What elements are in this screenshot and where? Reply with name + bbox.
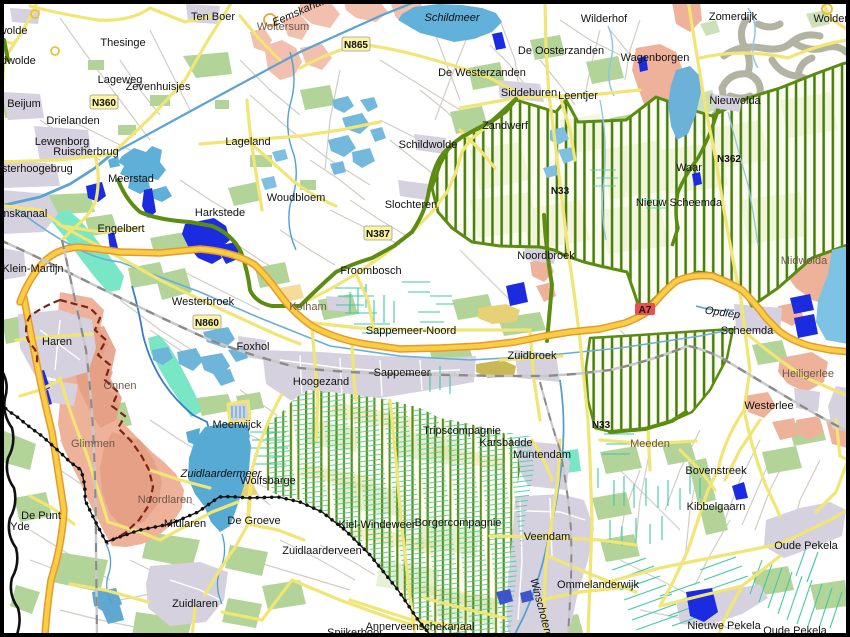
svg-text:Meeden: Meeden	[630, 438, 670, 450]
svg-text:Tripscompagnie: Tripscompagnie	[423, 425, 501, 437]
svg-text:Wolden: Wolden	[813, 13, 850, 25]
svg-text:Thesinge: Thesinge	[100, 37, 145, 49]
svg-text:Zomerdijk: Zomerdijk	[709, 11, 758, 23]
svg-text:Foxhol: Foxhol	[236, 341, 269, 353]
svg-text:Bovenstreek: Bovenstreek	[685, 465, 747, 477]
svg-text:N33: N33	[551, 186, 570, 197]
svg-text:Zuidlaarderveen: Zuidlaarderveen	[282, 545, 362, 557]
svg-text:N362: N362	[717, 154, 741, 165]
svg-text:Zuidbroek: Zuidbroek	[508, 350, 557, 362]
svg-text:Oude Pekela: Oude Pekela	[774, 540, 838, 552]
svg-text:De Oosterzanden: De Oosterzanden	[518, 45, 604, 57]
svg-text:N860: N860	[195, 318, 219, 329]
svg-text:Harkstede: Harkstede	[195, 207, 245, 219]
svg-text:Zuidlaardermeer: Zuidlaardermeer	[180, 468, 263, 480]
svg-text:Beijum: Beijum	[7, 98, 41, 110]
svg-text:Lageland: Lageland	[225, 136, 270, 148]
svg-text:Siddeburen: Siddeburen	[501, 87, 557, 99]
svg-text:Froombosch: Froombosch	[340, 265, 401, 277]
svg-text:Westerlee: Westerlee	[744, 400, 793, 412]
svg-text:Zevenhuisjes: Zevenhuisjes	[126, 81, 191, 93]
svg-text:Waar: Waar	[676, 162, 702, 174]
svg-text:Ten Boer: Ten Boer	[191, 11, 235, 23]
svg-text:Noordbroek: Noordbroek	[517, 250, 575, 262]
svg-text:dwolde: dwolde	[0, 25, 27, 37]
svg-text:Meerstad: Meerstad	[108, 173, 154, 185]
svg-text:Yde: Yde	[10, 521, 30, 533]
svg-text:Glimmen: Glimmen	[71, 438, 115, 450]
svg-text:Midwolda: Midwolda	[781, 255, 828, 267]
svg-text:Borgercompagnie: Borgercompagnie	[415, 517, 502, 529]
svg-text:Nieuwolda: Nieuwolda	[709, 95, 761, 107]
svg-text:Sappemeer: Sappemeer	[374, 367, 431, 379]
svg-text:Meerwijck: Meerwijck	[213, 419, 262, 431]
svg-text:Schildwolde: Schildwolde	[399, 139, 458, 151]
svg-text:Eemskanaal: Eemskanaal	[0, 208, 47, 220]
svg-text:Veendam: Veendam	[524, 531, 570, 543]
svg-text:Schildmeer: Schildmeer	[424, 12, 480, 24]
svg-text:Hoogezand: Hoogezand	[293, 376, 349, 388]
svg-text:Muntendam: Muntendam	[513, 449, 571, 461]
svg-text:Drielanden: Drielanden	[46, 115, 99, 127]
svg-text:Kibbelgaarn: Kibbelgaarn	[687, 501, 746, 513]
svg-text:De Westerzanden: De Westerzanden	[438, 67, 526, 79]
svg-text:Kiel-Windeweer: Kiel-Windeweer	[338, 519, 415, 531]
svg-text:Zandwerf: Zandwerf	[482, 120, 529, 132]
svg-text:Onnen: Onnen	[103, 380, 136, 392]
svg-text:Westerbroek: Westerbroek	[172, 296, 235, 308]
svg-text:Wilderhof: Wilderhof	[581, 13, 628, 25]
svg-text:Haren: Haren	[42, 336, 72, 348]
svg-text:Heiligerlee: Heiligerlee	[782, 368, 834, 380]
svg-text:Scheemda: Scheemda	[721, 325, 774, 337]
svg-text:N360: N360	[92, 98, 116, 109]
svg-text:Ommelanderwijk: Ommelanderwijk	[557, 579, 639, 591]
svg-text:Slochteren: Slochteren	[385, 199, 438, 211]
svg-text:Oosterhoogebrug: Oosterhoogebrug	[0, 163, 73, 175]
svg-text:Woudbloem: Woudbloem	[267, 192, 326, 204]
svg-text:Klein-Martijn: Klein-Martijn	[2, 263, 63, 275]
svg-text:Sappemeer-Noord: Sappemeer-Noord	[366, 325, 457, 337]
svg-text:Ruischerbrug: Ruischerbrug	[53, 146, 118, 158]
svg-text:Nieuwe Pekela: Nieuwe Pekela	[687, 620, 761, 632]
svg-text:Engelbert: Engelbert	[97, 223, 144, 235]
svg-text:Wagenborgen: Wagenborgen	[621, 52, 690, 64]
svg-text:N33: N33	[592, 420, 611, 431]
svg-text:Nieuw Scheemda: Nieuw Scheemda	[636, 197, 723, 209]
svg-text:uidwolde: uidwolde	[0, 55, 36, 67]
svg-text:Zuidlaren: Zuidlaren	[172, 598, 218, 610]
svg-text:N387: N387	[366, 229, 390, 240]
svg-text:A7: A7	[639, 305, 652, 316]
svg-text:Noordlaren: Noordlaren	[138, 494, 192, 506]
svg-text:De Groeve: De Groeve	[227, 515, 280, 527]
svg-text:Leentjer: Leentjer	[558, 90, 598, 102]
svg-text:Kolham: Kolham	[289, 301, 326, 313]
svg-text:Midlaren: Midlaren	[164, 518, 206, 530]
svg-text:N865: N865	[344, 40, 368, 51]
svg-text:Karsbadde: Karsbadde	[479, 437, 532, 449]
